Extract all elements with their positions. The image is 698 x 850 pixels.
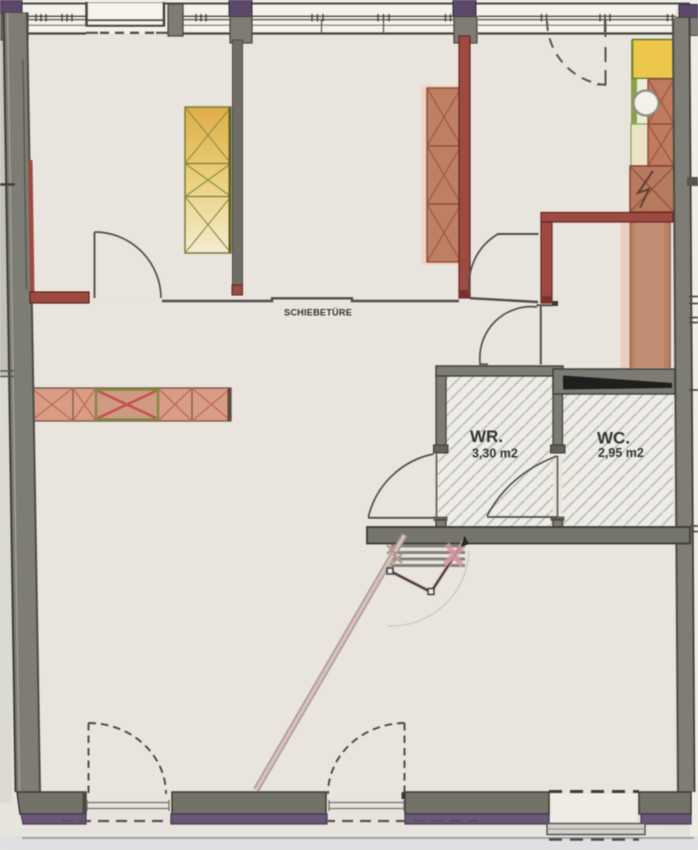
svg-text:WC.: WC. bbox=[597, 429, 630, 448]
svg-text:3,30 m2: 3,30 m2 bbox=[472, 447, 518, 461]
svg-text:2,95 m2: 2,95 m2 bbox=[598, 446, 644, 460]
svg-text:SCHIEBETÜRE: SCHIEBETÜRE bbox=[284, 308, 352, 318]
svg-text:WR.: WR. bbox=[470, 427, 503, 446]
